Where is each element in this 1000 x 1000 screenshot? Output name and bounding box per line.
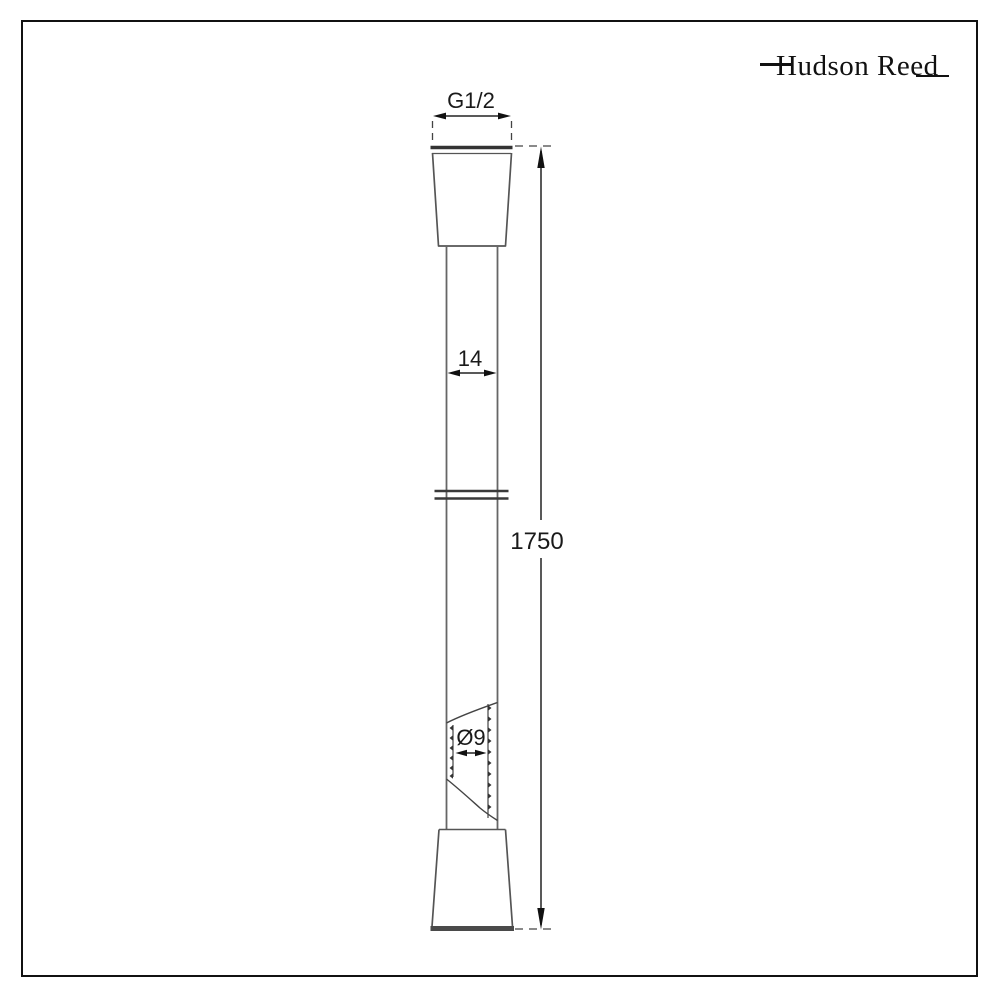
bottom-connector (431, 830, 515, 929)
arrowhead-left-icon (456, 750, 468, 756)
arrowhead-right-icon (498, 113, 511, 120)
inner-diameter-label: Ø9 (456, 725, 485, 750)
dimension-hose-length: 1750 (510, 146, 563, 930)
top-connector-body (433, 153, 512, 246)
length-dimension-label: 1750 (510, 528, 563, 555)
thread-dimension-label: G1/2 (447, 88, 495, 113)
technical-drawing: G1/2 14 1750 (0, 0, 1000, 1000)
arrowhead-left-icon (448, 370, 461, 377)
arrowhead-right-icon (484, 370, 497, 377)
dimension-thread-g12: G1/2 (433, 88, 512, 143)
cutaway-section: Ø9 (447, 703, 498, 821)
arrowhead-left-icon (433, 113, 446, 120)
width-dimension-label: 14 (458, 346, 482, 371)
top-connector (431, 148, 513, 247)
bottom-connector-sides (432, 830, 513, 927)
arrowhead-right-icon (475, 750, 487, 756)
dimension-hose-width: 14 (448, 346, 497, 376)
inner-wall-hatching (450, 705, 492, 810)
arrowhead-up-icon (537, 147, 544, 169)
arrowhead-down-icon (537, 908, 544, 930)
